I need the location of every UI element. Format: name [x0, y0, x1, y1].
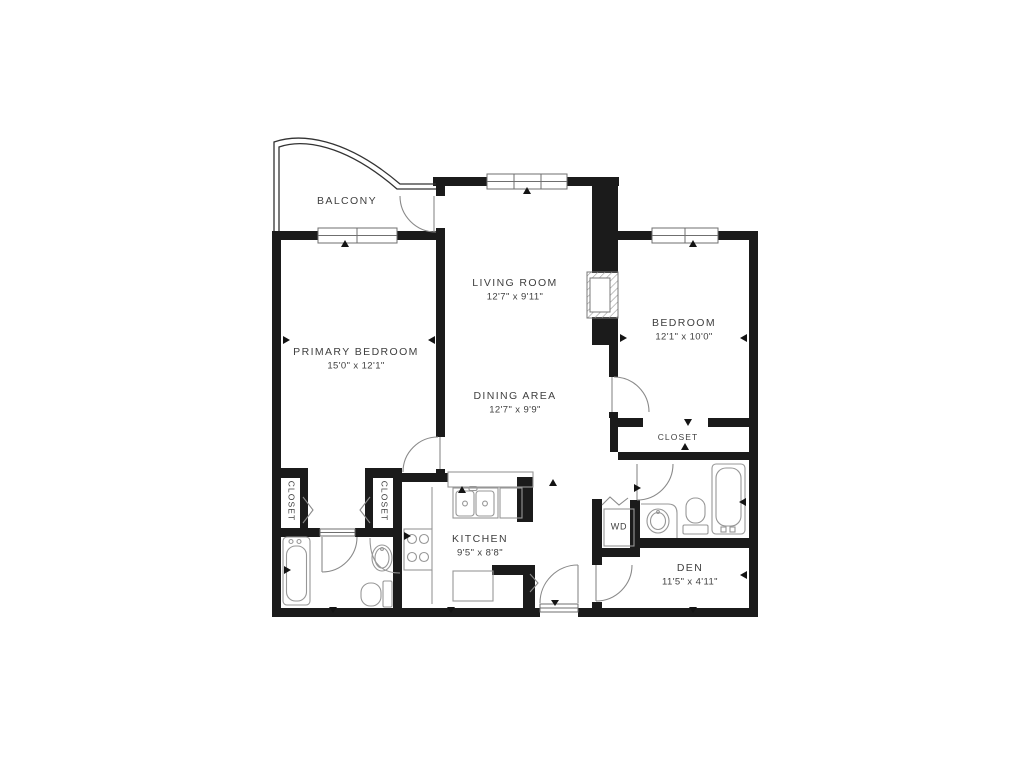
balcony-door: [400, 196, 436, 232]
primary-bedroom-dimensions: 15'0" x 12'1": [327, 361, 384, 371]
bathroom2-sink-icon: [647, 509, 669, 533]
living-room-label: LIVING ROOM: [472, 278, 557, 289]
hall-closet-right-label: CLOSET: [380, 481, 389, 522]
entry-door: [540, 565, 578, 603]
window-bedroom: [652, 228, 718, 243]
bedroom-door: [612, 377, 649, 412]
dining-area-label: DINING AREA: [473, 391, 556, 402]
bathroom2-door: [637, 464, 673, 500]
dining-area-dimensions: 12'7" x 9'9": [489, 405, 541, 415]
window-primary-bedroom: [318, 228, 397, 243]
entry-threshold: [540, 604, 578, 612]
toilet2-icon: [683, 498, 708, 534]
bedroom-label: BEDROOM: [652, 318, 716, 329]
den-dimensions: 11'5" x 4'11": [662, 577, 718, 587]
bedroom-closet-label: CLOSET: [658, 433, 699, 442]
den-door: [596, 565, 632, 601]
wd-bifold-door-icon: [602, 497, 628, 505]
window-living-room: [487, 174, 567, 189]
balcony-label: BALCONY: [317, 196, 377, 207]
kitchen-dimensions: 9'5" x 8'8": [457, 548, 503, 558]
floor-plan: BALCONY LIVING ROOM 12'7" x 9'11" DINING…: [0, 0, 1024, 768]
den-label: DEN: [677, 563, 703, 574]
bedroom-dimensions: 12'1" x 10'0": [655, 332, 712, 342]
living-room-dimensions: 12'7" x 9'11": [487, 292, 544, 302]
floor-plan-drawing: [0, 0, 1024, 768]
thresholds: [320, 529, 578, 612]
windows: [318, 174, 718, 243]
kitchen-label: KITCHEN: [452, 534, 508, 545]
bathroom1-door: [322, 537, 357, 572]
washer-dryer-label: WD: [611, 523, 628, 532]
balcony-railing: [274, 138, 436, 231]
primary-bedroom-label: PRIMARY BEDROOM: [293, 347, 419, 358]
hall-closet-left-label: CLOSET: [287, 481, 296, 522]
fireplace-icon: [587, 272, 618, 318]
primary-bedroom-door: [403, 437, 440, 472]
toilet-icon: [361, 581, 392, 607]
bathtub2-icon: [712, 464, 745, 534]
bathroom-threshold: [320, 529, 355, 536]
